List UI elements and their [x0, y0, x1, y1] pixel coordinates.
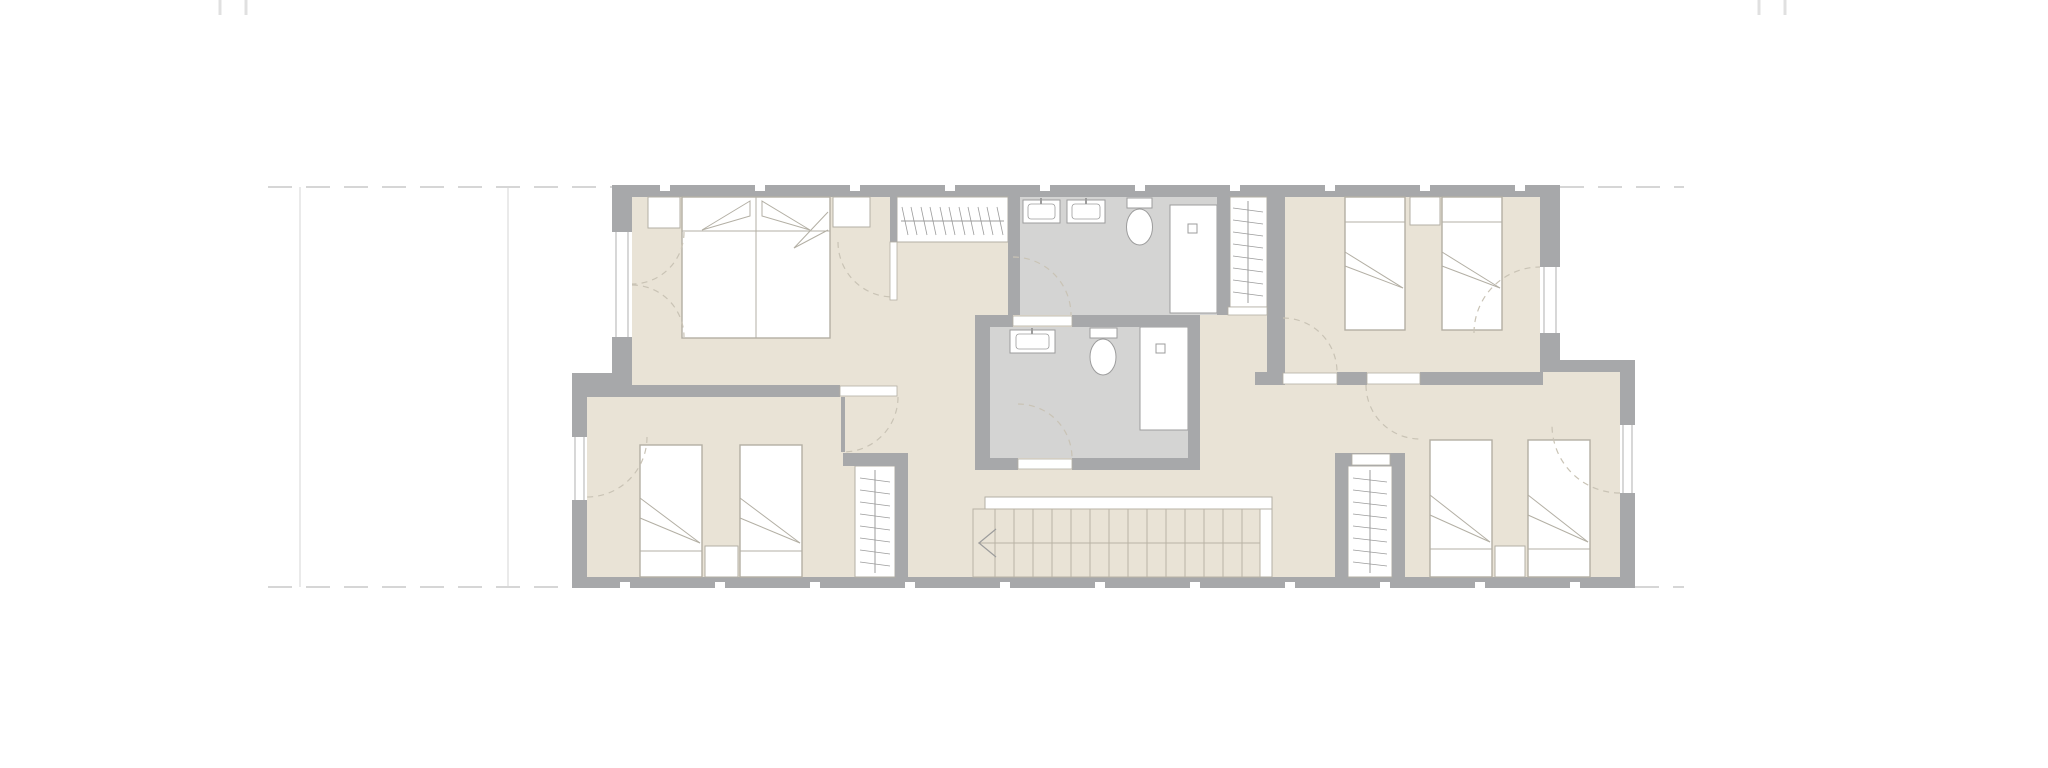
bedroom-br-nightstand — [1495, 546, 1525, 577]
wall-bedroom-tr-south-b — [1337, 372, 1367, 385]
bedroom-ll-bed-2 — [740, 445, 802, 577]
toilet-lower-tank — [1090, 328, 1117, 338]
bedroom-br-bed-1 — [1430, 440, 1492, 577]
wall-bath-divider-b — [1072, 315, 1200, 327]
wall-closet-hall-west — [1335, 453, 1348, 577]
wall-bath-lower-south-b — [1072, 458, 1200, 470]
floor-plan-svg — [0, 0, 2048, 768]
floor-plan-page — [0, 0, 2048, 768]
wall-bath-upper-west — [1008, 197, 1020, 315]
master-nightstand-left — [648, 197, 680, 228]
bedroom-tr-bed-1 — [1345, 197, 1405, 330]
door-threshold-bedroom-br — [1367, 373, 1420, 384]
toilet-upper-tank — [1127, 198, 1152, 208]
toilet-upper-bowl — [1127, 209, 1153, 245]
door-threshold-bath-lower — [1018, 459, 1072, 469]
wall-master-closet-stub — [890, 197, 897, 242]
wall-bedroom-tr-south-a — [1255, 372, 1283, 385]
wall-bedroom-tr-west — [1267, 185, 1285, 385]
toilet-lower-bowl — [1090, 339, 1116, 375]
door-threshold-master — [890, 242, 897, 300]
closet-threshold-lower — [1352, 454, 1390, 465]
window-tr-east — [1540, 267, 1560, 333]
window-br-east — [1620, 425, 1635, 493]
stair-landing-strip-top — [985, 497, 1272, 509]
wall-bath-lower-south-a — [975, 458, 1018, 470]
wall-bedroom-tr-south-c — [1420, 372, 1543, 385]
closet-threshold-upper — [1228, 307, 1267, 315]
wall-master-south — [587, 385, 840, 397]
stair-landing-strip-right — [1260, 509, 1272, 577]
grid-tick-marks — [220, 0, 1785, 15]
window-ll-west — [572, 437, 587, 500]
window-master-west — [612, 232, 632, 337]
bedroom-ll-bed-1 — [640, 445, 702, 577]
wall-shower-closet-stub — [1217, 197, 1230, 315]
wall-closet-ll-east — [895, 453, 908, 577]
door-threshold-bedroom-ll — [840, 386, 897, 396]
bedroom-tr-nightstand — [1410, 197, 1440, 225]
bedroom-ll-nightstand — [705, 546, 738, 577]
door-threshold-bath-upper — [1013, 316, 1072, 326]
master-nightstand-right — [833, 197, 870, 227]
wall-closet-hall-east — [1392, 453, 1405, 577]
bedroom-br-bed-2 — [1528, 440, 1590, 577]
bedroom-tr-bed-2 — [1442, 197, 1502, 330]
shower-upper — [1170, 205, 1217, 313]
wall-bath-lower-west — [975, 315, 990, 470]
door-threshold-bedroom-tr — [1283, 373, 1337, 384]
wall-bath-lower-east — [1188, 315, 1200, 470]
shower-lower — [1140, 327, 1188, 430]
